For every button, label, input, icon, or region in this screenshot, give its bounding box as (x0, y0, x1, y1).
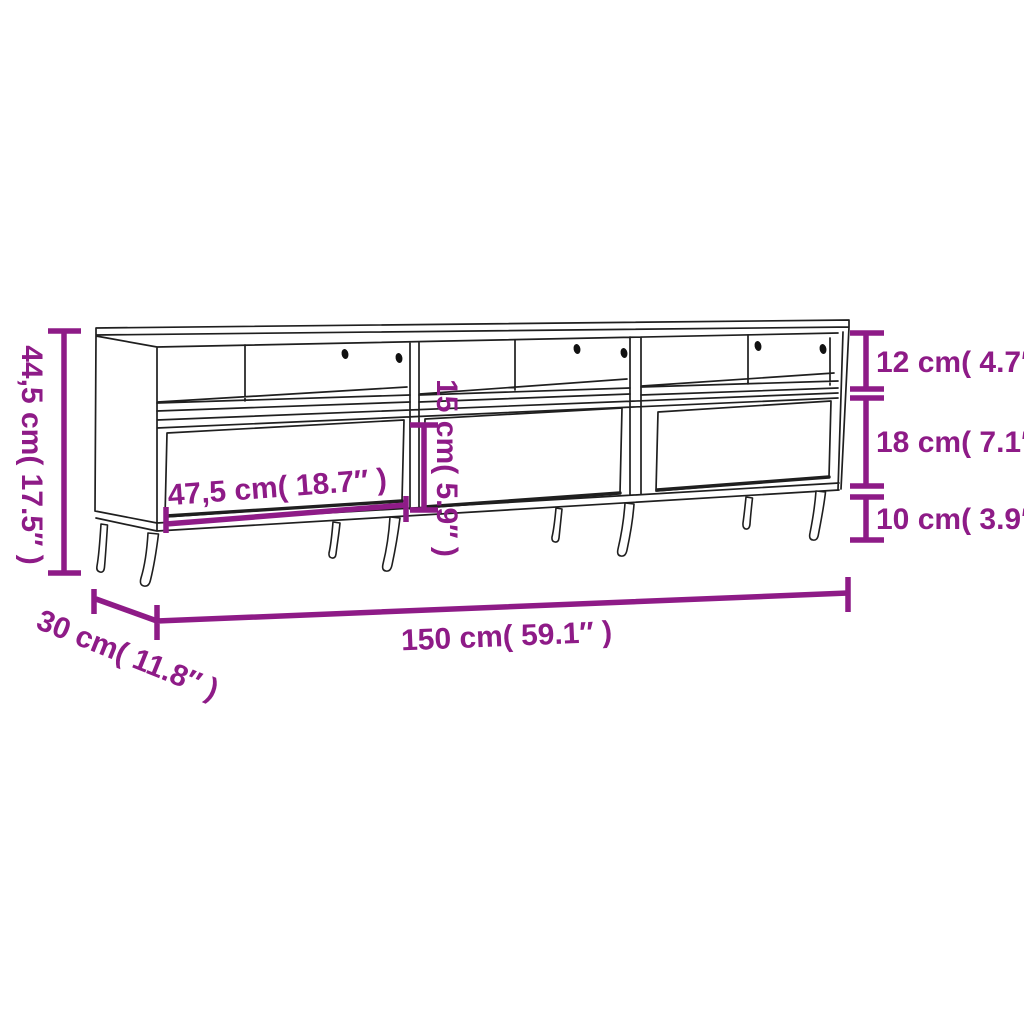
dimension-leg-height: 10 cm( 3.9″ ) (850, 497, 1024, 540)
leg-back-3 (552, 508, 562, 542)
dimension-label-overall-height: 44,5 cm( 17.5″ ) (15, 345, 48, 565)
leg-back-left (97, 524, 108, 572)
dimension-drawer-section-height: 18 cm( 7.1″ ) (850, 398, 1024, 486)
dimension-overall-depth-line (94, 589, 157, 621)
dimension-overall-depth: 30 cm( 11.8″ ) (32, 589, 223, 707)
dimension-drawer-front-height: 15 cm( 5.9″ ) (410, 379, 463, 557)
dimension-overall-height-line (48, 331, 81, 573)
shelf-compartment-details (157, 335, 838, 411)
cable-hole (395, 352, 404, 363)
cable-hole (573, 343, 582, 354)
dimension-overall-height: 44,5 cm( 17.5″ ) (15, 331, 81, 573)
dimension-label-drawer-section-height: 18 cm( 7.1″ ) (876, 426, 1024, 459)
tv-stand-diagram-svg: 44,5 cm( 17.5″ ) 12 cm( 4.7″ ) 18 cm( 7.… (0, 0, 1024, 1024)
dimension-label-compartment-height: 12 cm( 4.7″ ) (876, 346, 1024, 379)
cable-hole (819, 343, 828, 354)
cable-hole-dots (341, 340, 828, 363)
dimension-overall-width: 150 cm( 59.1″ ) (157, 577, 848, 657)
dimension-label-overall-width: 150 cm( 59.1″ ) (400, 616, 612, 658)
leg-back-right (743, 497, 753, 529)
furniture-dimension-diagram: 44,5 cm( 17.5″ ) 12 cm( 4.7″ ) 18 cm( 7.… (0, 0, 1024, 1024)
cable-hole (754, 340, 763, 351)
dimension-label-leg-height: 10 cm( 3.9″ ) (876, 503, 1024, 536)
leg-back-2 (329, 522, 340, 558)
leg-front-2 (383, 517, 400, 571)
cable-hole (341, 348, 350, 359)
tv-stand-drawing (95, 320, 849, 586)
leg-front-left (140, 533, 158, 586)
cable-hole (620, 347, 629, 358)
leg-front-3 (618, 503, 634, 556)
dimension-compartment-height: 12 cm( 4.7″ ) (850, 333, 1024, 389)
leg-front-right (810, 491, 826, 540)
dimension-label-drawer-front-height: 15 cm( 5.9″ ) (430, 379, 463, 557)
